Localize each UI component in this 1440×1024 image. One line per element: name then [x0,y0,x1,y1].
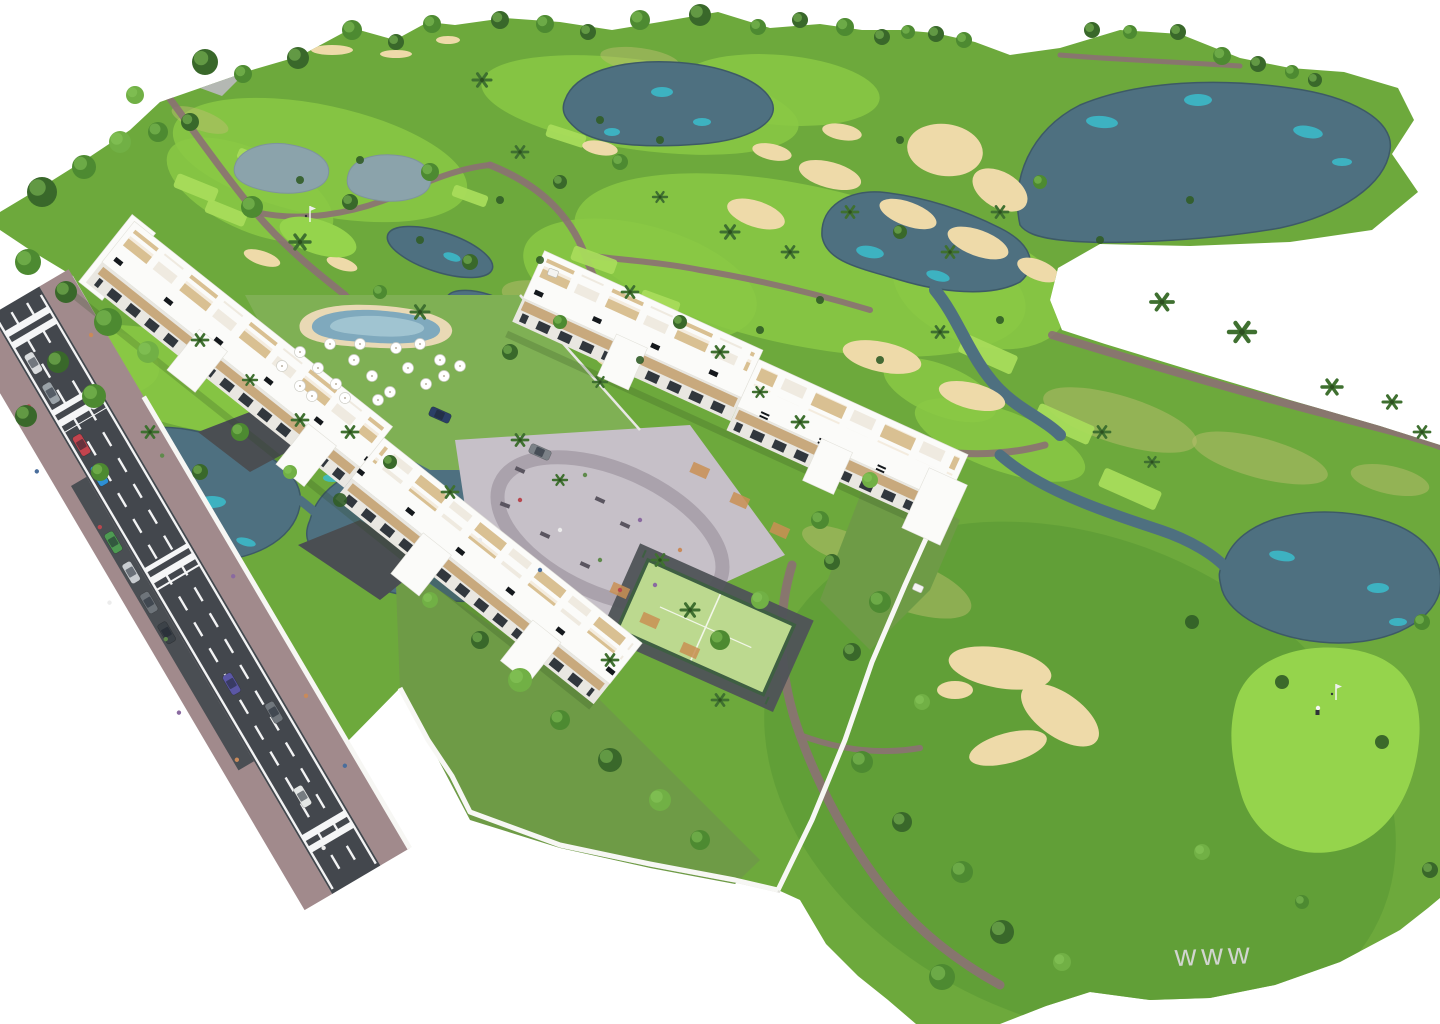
bush [816,296,824,304]
tree [421,163,439,181]
person [538,568,542,572]
water-highlight [1389,618,1407,626]
tree [342,20,362,40]
tree [1123,25,1137,39]
bush [1275,675,1289,689]
tree [750,19,766,35]
bush [996,316,1004,324]
tree [72,155,96,179]
umbrella [385,387,396,398]
bush [333,493,347,507]
tree [553,175,567,189]
tree [192,464,208,480]
tree [869,591,891,613]
tree [553,315,567,329]
tree [914,694,930,710]
tree [689,4,711,26]
umbrella [415,339,426,350]
tree [1213,47,1231,65]
tree [792,12,808,28]
water-highlight [1367,583,1389,593]
tree [550,710,570,730]
tree [82,384,106,408]
bush [356,156,364,164]
umbrella [313,363,324,374]
umbrella [349,355,360,366]
tree [126,86,144,104]
tree [843,643,861,661]
bush [1375,735,1389,749]
tree [462,254,478,270]
person [598,558,602,562]
umbrella [421,379,432,390]
tree [234,65,252,83]
tree [1053,953,1071,971]
tree [612,154,628,170]
tree [423,15,441,33]
tree [956,32,972,48]
tree [192,49,218,75]
bush [296,176,304,184]
golfer [1316,706,1320,710]
tree [951,861,973,883]
umbrella [331,379,342,390]
person [478,538,482,542]
tree [1422,862,1438,878]
aerial-render: www [0,0,1440,1024]
tree [1250,56,1266,72]
tree [91,463,109,481]
water-highlight [693,118,711,126]
water-highlight [651,87,673,97]
tree [27,177,57,207]
bush [1186,196,1194,204]
tree [928,26,944,42]
tree [491,11,509,29]
umbrella [340,393,351,404]
water-highlight [604,128,620,136]
tree [824,554,840,570]
tree [536,15,554,33]
umbrella [373,395,384,406]
bush [896,136,904,144]
tree [388,34,404,50]
tree [710,630,730,650]
tree [1033,175,1047,189]
bush [876,356,884,364]
tree [630,10,650,30]
umbrella [355,339,366,350]
umbrella [325,339,336,350]
tree [836,18,854,36]
person [518,498,522,502]
tree [1084,22,1100,38]
tree [901,25,915,39]
tree [1308,73,1322,87]
water-highlight [1332,158,1352,166]
person [618,588,622,592]
tree [373,285,387,299]
tree [502,344,518,360]
tree [1285,65,1299,79]
bush [496,196,504,204]
bush [1096,236,1104,244]
tree [55,281,77,303]
tree [383,455,397,469]
person [558,528,562,532]
tree [892,812,912,832]
tree [1194,844,1210,860]
watermark: www [1173,937,1255,973]
tree [94,308,122,336]
bush [536,256,544,264]
tree [15,249,41,275]
bush [656,136,664,144]
bush [1185,615,1199,629]
person [678,548,682,552]
umbrella [435,355,446,366]
tree [649,789,671,811]
tree [598,748,622,772]
tree [471,631,489,649]
tree [508,668,532,692]
bush [416,236,424,244]
render-canvas: www [0,0,1440,1024]
tree [929,964,955,990]
umbrella [403,363,414,374]
tree [990,920,1014,944]
umbrella [455,361,466,372]
tree [673,315,687,329]
tree [15,405,37,427]
water-highlight [1184,94,1212,106]
bush [756,326,764,334]
tree [893,225,907,239]
umbrella [391,343,402,354]
tree [241,196,263,218]
tree [874,29,890,45]
tree [751,591,769,609]
person [653,583,657,587]
person [583,473,587,477]
umbrella [295,347,306,358]
person [638,518,642,522]
sand-bunker [436,36,460,44]
tree [181,113,199,131]
sand-bunker [380,50,412,58]
tree [148,122,168,142]
tree [283,465,297,479]
bush [636,356,644,364]
tree [109,131,131,153]
tree [851,751,873,773]
tree [137,341,159,363]
tree [690,830,710,850]
sand-bunker [937,681,973,699]
umbrella [367,371,378,382]
tree [287,47,309,69]
tree [862,472,878,488]
tree [811,511,829,529]
tree [422,592,438,608]
umbrella [439,371,450,382]
bush [596,116,604,124]
tree [342,194,358,210]
umbrella [295,381,306,392]
umbrella [307,391,318,402]
tree [1170,24,1186,40]
tree [47,351,69,373]
tree [1414,614,1430,630]
tree [231,423,249,441]
tree [1295,895,1309,909]
umbrella [277,361,288,372]
tree [580,24,596,40]
